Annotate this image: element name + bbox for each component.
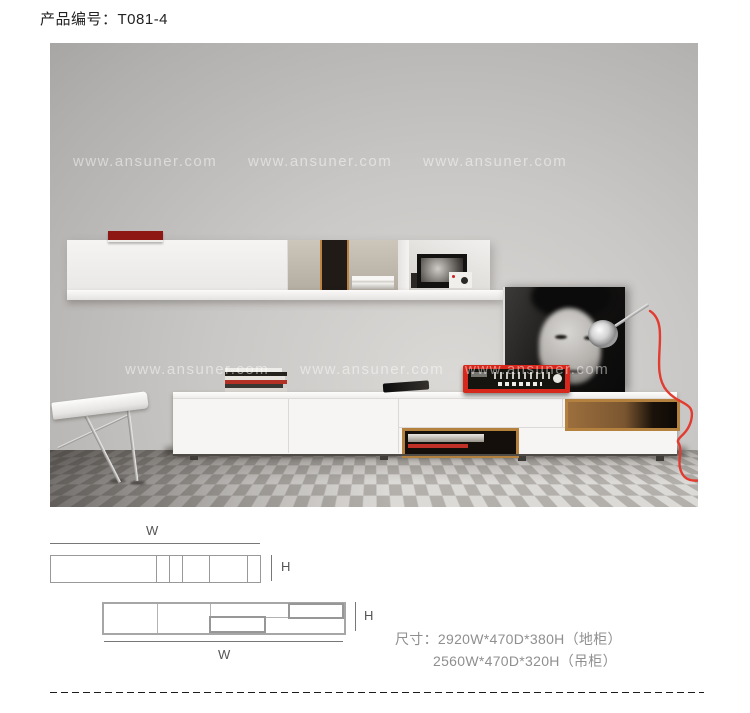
- bench-drawer-divider: [398, 399, 399, 453]
- diagram-compartment: [288, 603, 344, 619]
- diagram-divider: [209, 556, 210, 582]
- decor-red-book: [108, 231, 163, 242]
- decor-red-case: [408, 444, 468, 448]
- floor-diagram-height-line: [355, 602, 356, 631]
- hanging-cabinet-ledge: [67, 290, 503, 300]
- hanging-diagram-height-label: H: [281, 559, 290, 574]
- watermark-text: www.ansuner.com: [125, 361, 269, 378]
- watermark-text: www.ansuner.com: [423, 153, 567, 170]
- radio-buttons: [498, 382, 542, 386]
- dimension-line-2: 2560W*470D*320H（吊柜）: [433, 651, 617, 671]
- decor-dvd-player: [408, 434, 484, 442]
- diagram-compartment: [209, 616, 266, 633]
- floor-diagram-width-label: W: [218, 647, 230, 662]
- hanging-cabinet-door: [67, 240, 288, 290]
- floor-diagram-width-line: [104, 641, 343, 642]
- bench-drawer-divider: [562, 399, 563, 427]
- product-photo: www.ansuner.com www.ansuner.com www.ansu…: [50, 43, 698, 507]
- camera-dot: [452, 275, 455, 278]
- chair-leg: [127, 408, 139, 481]
- hanging-cabinet-open-shelf: [288, 240, 398, 290]
- tv-bench: [173, 392, 677, 456]
- product-code-label: 产品编号：T081-4: [40, 8, 168, 29]
- decor-books: [320, 240, 349, 290]
- hanging-diagram-width-line: [50, 543, 260, 544]
- diagram-divider: [156, 556, 157, 582]
- bench-top-surface: [173, 392, 677, 399]
- chair-seat: [51, 391, 148, 420]
- dashed-separator-line: [50, 692, 704, 693]
- diagram-divider: [169, 556, 170, 582]
- decor-hifi-stack: [352, 276, 394, 289]
- product-detail-page: 产品编号：T081-4 www.ansuner.com www.ansuner.…: [0, 0, 750, 713]
- diagram-divider: [157, 604, 158, 633]
- dimension-line-1: 尺寸：2920W*470D*380H（地柜）: [395, 629, 622, 649]
- floor-cabinet-diagram: [102, 602, 346, 635]
- watermark-text: www.ansuner.com: [73, 153, 217, 170]
- hanging-cabinet-open-shelf: [409, 240, 490, 290]
- chair-shadow: [130, 481, 146, 485]
- hanging-cabinet-diagram: [50, 555, 261, 583]
- bench-open-compartment: [565, 399, 680, 431]
- watermark-text: www.ansuner.com: [465, 361, 609, 378]
- hanging-diagram-width-label: W: [146, 523, 158, 538]
- floor-diagram-height-label: H: [364, 608, 373, 623]
- bench-drawer-divider: [288, 399, 289, 453]
- watermark-text: www.ansuner.com: [300, 361, 444, 378]
- decor-camera: [449, 272, 472, 288]
- diagram-divider: [247, 556, 248, 582]
- decor-remote-control: [383, 380, 430, 392]
- designer-chair: [58, 393, 153, 485]
- bench-bottom-edge: [173, 454, 677, 456]
- diagram-divider: [182, 556, 183, 582]
- hanging-diagram-height-line: [271, 555, 272, 581]
- camera-lens: [461, 277, 468, 284]
- desk-lamp: [588, 320, 618, 348]
- hanging-cabinet-divider: [398, 240, 409, 290]
- hanging-cabinet: [67, 240, 490, 290]
- watermark-text: www.ansuner.com: [248, 153, 392, 170]
